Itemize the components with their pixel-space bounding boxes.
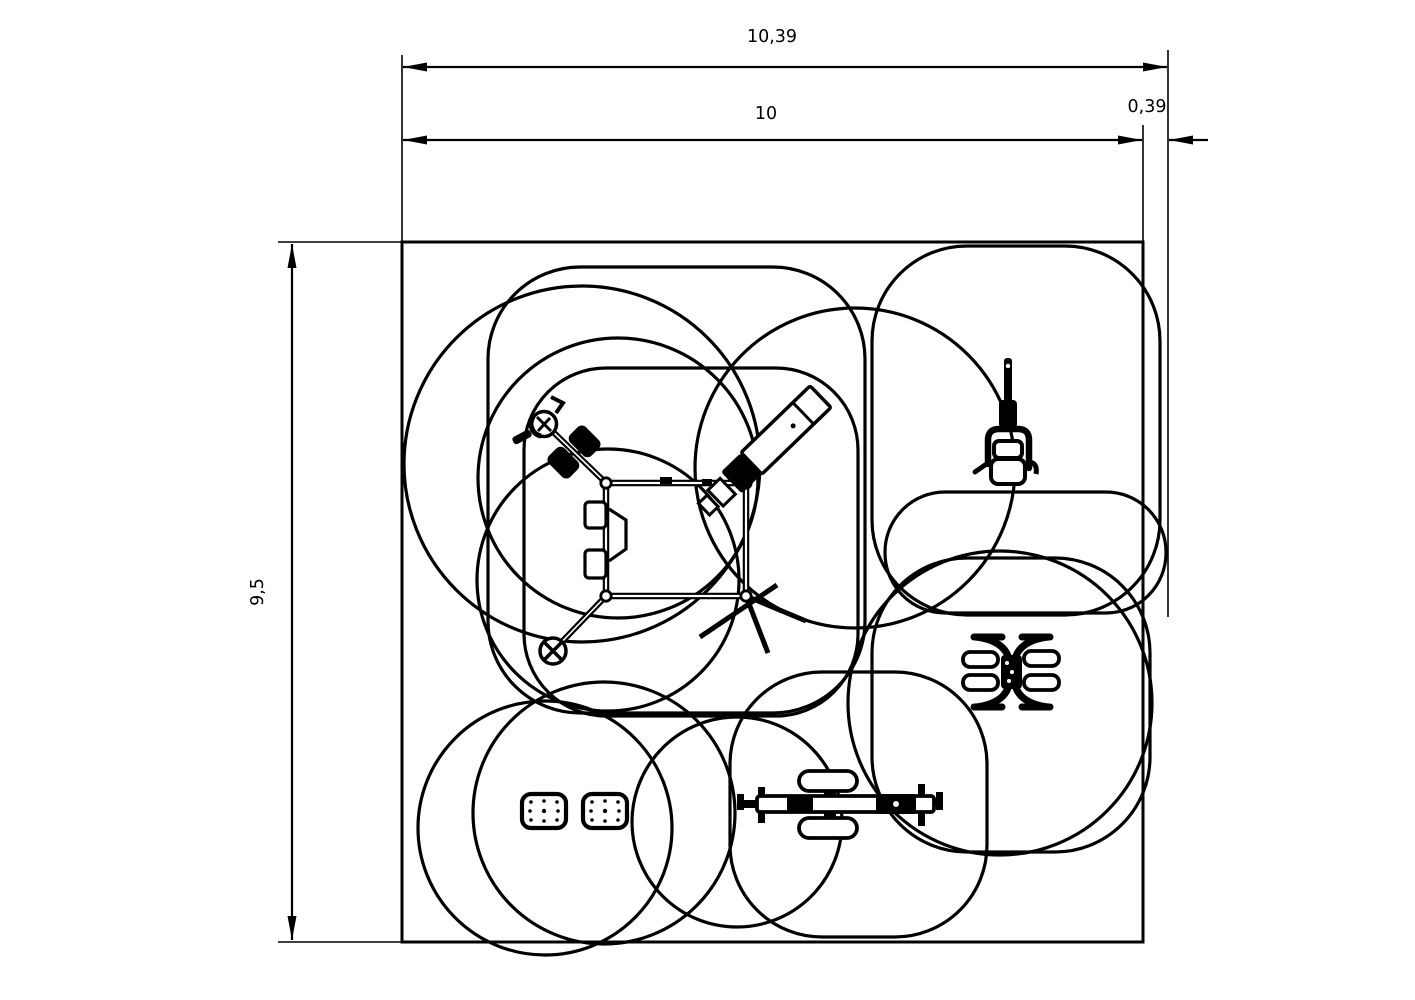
arrowhead: [1143, 63, 1167, 72]
overhead-press-station-icon: [975, 358, 1036, 484]
balance-plate-icon: [522, 794, 566, 828]
frame-top-nub: [702, 479, 712, 485]
dim-label-height: 9,5: [248, 578, 268, 606]
incline-bench-icon: [694, 386, 831, 520]
dim-label-overall-width: 10,39: [747, 27, 797, 47]
dim-label-main-width: 10: [755, 104, 777, 124]
dim-label-side-extension: 0,39: [1128, 97, 1167, 117]
arrowhead: [1118, 136, 1142, 145]
arrowhead: [1169, 136, 1193, 145]
arrowhead: [403, 63, 427, 72]
layout-plan-svg: 10,39 10 0,39 9,5: [0, 0, 1415, 1000]
four-seat-pendulum-icon: [963, 637, 1059, 707]
frame-top-nub: [660, 477, 672, 484]
balance-plate-icon: [583, 794, 627, 828]
arrowhead: [403, 136, 427, 145]
safety-zones: [404, 246, 1166, 955]
arrowhead: [288, 916, 297, 940]
hand-wheel-icon: [540, 638, 566, 664]
safety-zone-outline: [404, 286, 760, 642]
arrowhead: [288, 244, 297, 268]
technical-drawing-sheet: 10,39 10 0,39 9,5: [0, 0, 1415, 1000]
safety-zone-outline: [478, 338, 758, 618]
play-area-boundary: [402, 242, 1143, 942]
